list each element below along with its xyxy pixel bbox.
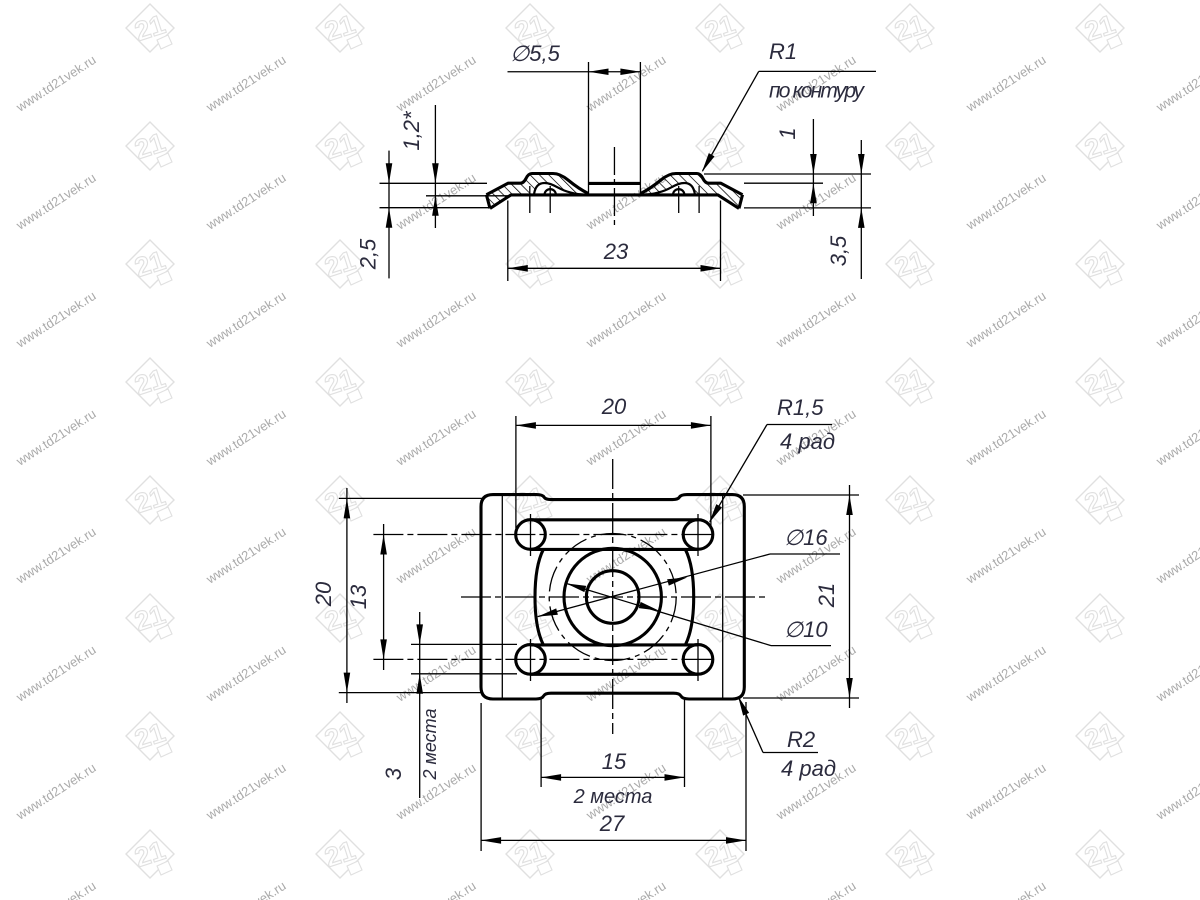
svg-text:13: 13 — [346, 584, 371, 609]
svg-text:R2: R2 — [787, 727, 815, 752]
svg-text:R1: R1 — [769, 39, 797, 64]
svg-text:∅16: ∅16 — [784, 525, 828, 550]
svg-text:21: 21 — [814, 583, 839, 608]
svg-text:по контуру: по контуру — [769, 80, 866, 103]
svg-text:∅10: ∅10 — [784, 617, 828, 642]
svg-text:15: 15 — [602, 749, 627, 774]
svg-text:1,2*: 1,2* — [399, 110, 424, 151]
svg-text:4 рад: 4 рад — [781, 756, 836, 781]
svg-text:20: 20 — [601, 394, 627, 419]
svg-text:3,5: 3,5 — [826, 235, 851, 266]
svg-text:∅5,5: ∅5,5 — [510, 41, 561, 66]
svg-text:R1,5: R1,5 — [777, 395, 824, 420]
svg-text:3: 3 — [381, 767, 406, 780]
svg-text:1: 1 — [775, 127, 800, 139]
svg-text:2 места: 2 места — [420, 709, 440, 781]
svg-text:27: 27 — [599, 811, 625, 836]
svg-text:2,5: 2,5 — [356, 238, 381, 270]
svg-text:23: 23 — [603, 239, 629, 264]
svg-text:4 рад: 4 рад — [780, 429, 835, 454]
svg-text:2 места: 2 места — [573, 786, 653, 808]
svg-text:20: 20 — [311, 581, 336, 607]
